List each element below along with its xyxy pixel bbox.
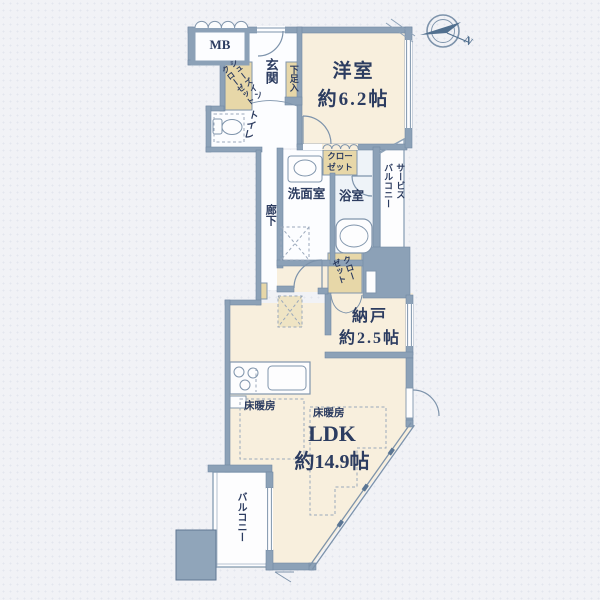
balcony-label: バルコニー — [234, 492, 246, 542]
balcony-partition — [275, 572, 294, 582]
compass-north-label: N — [461, 34, 475, 48]
wall — [318, 288, 328, 294]
balcony-window — [266, 488, 273, 550]
service-balcony-label: サービス バルコニー — [382, 163, 406, 208]
toilet-bowl — [222, 120, 242, 135]
floorplan-canvas: N — [0, 0, 600, 600]
wall — [225, 300, 261, 305]
wall — [325, 352, 413, 358]
floor-heating-2-label: 床暖房 — [313, 408, 345, 421]
service-window — [366, 271, 376, 293]
kitchen-sink — [268, 366, 306, 390]
shoe-box-label: 下足入 — [288, 65, 299, 92]
bathtub — [336, 219, 372, 253]
bathroom-label: 浴室 — [330, 189, 373, 204]
storage-size: 約2.5帖 — [328, 328, 412, 350]
entrance-label: 玄関 — [263, 58, 279, 84]
ldk-name: LDK — [268, 420, 396, 449]
compass-needle — [420, 22, 461, 35]
ldk-label: LDK約14.9帖 — [268, 420, 396, 475]
compass: N — [420, 15, 475, 48]
wall — [330, 173, 335, 264]
wall — [225, 300, 230, 472]
closet-west-label: クロー ゼット — [323, 151, 357, 172]
exterior-block — [176, 530, 216, 580]
entrance-door-gap — [257, 26, 285, 34]
wall — [406, 358, 413, 390]
ldk-size: 約14.9帖 — [268, 449, 396, 475]
western-room-name: 洋室 — [302, 58, 405, 86]
western-window — [405, 40, 412, 128]
right-exterior-door-arc — [413, 390, 439, 416]
wall — [373, 147, 380, 264]
western-room-label: 洋室約6.2帖 — [302, 58, 405, 113]
mb-label: MB — [193, 37, 247, 53]
right-exterior-door-leaf — [406, 388, 413, 418]
floorplan: N MB シューズイン クローゼット 玄関 下足入 トイレ 洋室約6.2帖 クロ… — [0, 0, 600, 600]
wall — [285, 97, 302, 105]
storage-name: 納戸 — [328, 306, 412, 328]
wall — [206, 106, 211, 152]
toilet-tank — [213, 119, 222, 134]
storage-label: 納戸約2.5帖 — [328, 306, 412, 349]
western-room-size: 約6.2帖 — [302, 86, 405, 114]
floor-heating-1-label: 床暖房 — [244, 401, 276, 414]
washroom-label: 洗面室 — [283, 187, 330, 202]
wall — [206, 147, 262, 152]
mb-double-doors — [195, 21, 248, 28]
wall — [256, 150, 261, 305]
wall — [208, 465, 272, 472]
wall — [277, 286, 294, 292]
corridor-label: 廊下 — [263, 204, 276, 226]
wall — [277, 148, 283, 268]
wall — [266, 550, 273, 570]
